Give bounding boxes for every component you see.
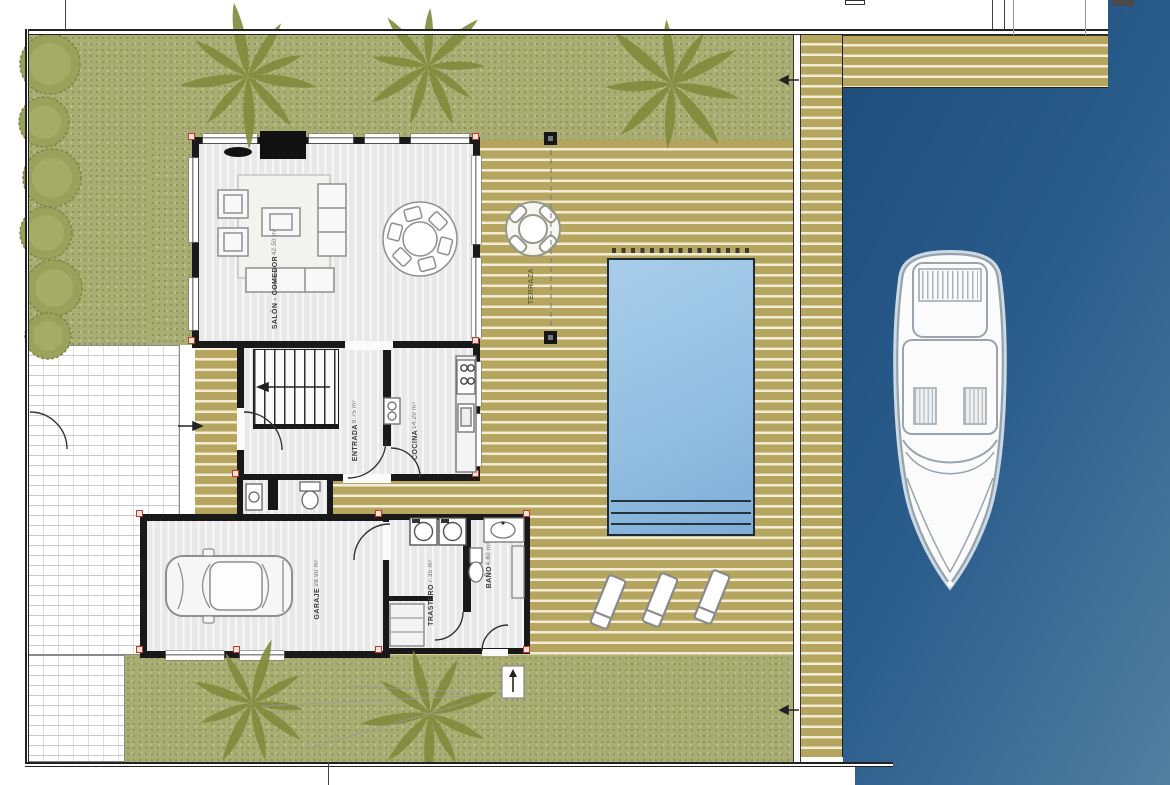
window: [411, 134, 469, 143]
room-living: [192, 137, 480, 348]
door-opening: [237, 408, 245, 450]
door-opening: [482, 649, 508, 656]
label-hall: ENTRADA8.75 m²: [352, 400, 359, 461]
dock-walkway-vertical: [801, 35, 843, 757]
room-storage-bath: [383, 514, 530, 654]
glass-door: [472, 258, 481, 338]
pool-step: [611, 500, 751, 502]
label-terrace: TERRAZA: [528, 268, 535, 304]
pool-step: [611, 512, 751, 514]
corner-marker: [136, 646, 143, 653]
label-garage: GARAJE28.90 m²: [314, 560, 321, 619]
corner-marker: [232, 470, 239, 477]
survey-tick: [65, 0, 66, 29]
corner-marker: [375, 510, 382, 517]
survey-tick: [1013, 0, 1014, 35]
pool-step: [611, 523, 751, 525]
survey-mark: [845, 0, 865, 5]
corner-marker: [472, 337, 479, 344]
window: [203, 134, 257, 143]
corner-marker: [136, 510, 143, 517]
glass-door: [472, 156, 481, 244]
corner-marker: [233, 646, 240, 653]
site-plan: SALÓN - COMEDOR42.50 m² TERRAZA ENTRADA8…: [0, 0, 1170, 785]
sea-water: [843, 0, 1170, 785]
survey-tick: [328, 762, 329, 785]
pergola-post: [544, 132, 557, 145]
corner-marker: [523, 646, 530, 653]
kitchen-window: [472, 414, 481, 466]
pier-block: [1112, 0, 1134, 6]
survey-tick: [992, 0, 993, 29]
door-opening: [345, 341, 393, 350]
corner-marker: [375, 646, 382, 653]
room-garage: [140, 514, 390, 658]
swimming-pool: [607, 258, 755, 536]
door-opening: [343, 474, 391, 483]
side-path: [793, 35, 801, 762]
garden-left-strip: [28, 35, 150, 345]
pool-edge-drain-dots: [612, 248, 750, 253]
label-storage: TRASTERO7.35 m²: [428, 560, 435, 626]
dock-walkway-top: [843, 35, 1108, 88]
label-living-room: SALÓN - COMEDOR42.50 m²: [272, 228, 279, 329]
staircase: [253, 349, 339, 429]
label-bathroom: BAÑO4.80 m²: [486, 542, 493, 588]
garden-bottom-band: [125, 655, 795, 762]
door-opening: [383, 522, 391, 560]
driveway-paving-lower: [28, 655, 125, 762]
garage-window: [166, 651, 224, 660]
garage-window: [240, 651, 284, 660]
wall-closet: [389, 596, 433, 601]
window: [365, 134, 399, 143]
boundary-bottom: [25, 762, 893, 767]
kitchen-window: [472, 362, 481, 406]
corner-marker: [523, 510, 530, 517]
corner-marker: [188, 337, 195, 344]
pergola-post: [544, 331, 557, 344]
boundary-top: [25, 29, 1108, 35]
corner-marker: [188, 133, 195, 140]
window: [189, 278, 198, 330]
boundary-left: [25, 29, 29, 762]
wall-hall-kitchen: [383, 348, 391, 446]
window: [309, 134, 353, 143]
survey-tick: [1004, 0, 1005, 29]
label-kitchen: COCINA14.20 m²: [412, 402, 419, 460]
survey-tick: [1085, 0, 1086, 35]
corner-marker: [472, 470, 479, 477]
garden-top-band: [150, 35, 795, 140]
wall-storage-bath: [463, 520, 471, 612]
window: [189, 158, 198, 242]
corner-marker: [472, 133, 479, 140]
